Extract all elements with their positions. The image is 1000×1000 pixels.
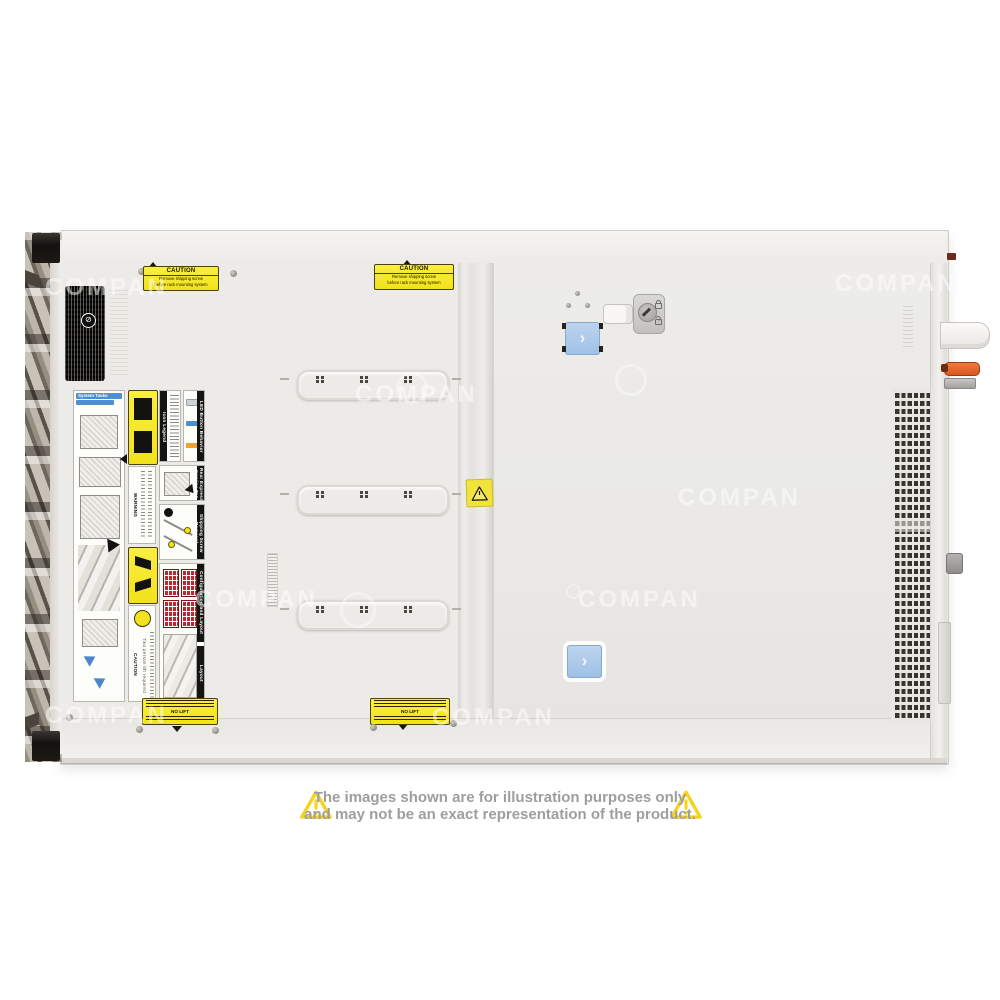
- vent-highlight: [893, 518, 931, 532]
- cover-recess-handle: [297, 485, 449, 515]
- seam-dash: [280, 493, 289, 495]
- vent-dots: [360, 376, 363, 379]
- psu-release-handle: [944, 362, 980, 376]
- system-tasks-subheader: [76, 400, 114, 405]
- disclaimer-line2: and may not be an exact representation o…: [0, 806, 1000, 823]
- locked-icon: [655, 303, 662, 309]
- disclaimer: The images shown are for illustration pu…: [0, 789, 1000, 823]
- caution-title: CAUTION: [375, 265, 453, 274]
- seam-dash: [452, 493, 461, 495]
- latch-clip: [599, 323, 603, 329]
- watermark-logo-ring: [566, 584, 581, 599]
- icon-legend-header: Icon Legend: [160, 391, 167, 462]
- blue-arrow-icon: [94, 673, 109, 688]
- chassis-top-edge: [60, 231, 946, 264]
- pinch-warning-strip: [128, 390, 158, 465]
- latch-clip: [562, 323, 566, 329]
- pointer-arrow-icon: [120, 454, 127, 464]
- caution-header: CAUTION: [130, 630, 138, 700]
- rear-bracket-handle: [940, 322, 990, 349]
- icon-legend-label: Icon Legend: [159, 390, 181, 462]
- chassis-bottom-shadow: [60, 758, 947, 764]
- rear-red-nub: [947, 253, 956, 260]
- hot-surface-sticker: [466, 479, 494, 508]
- watermark-text: COMPAN: [195, 586, 318, 614]
- pinch-hazard-icon: [135, 578, 151, 592]
- system-tasks-label: System Tasks: [73, 390, 125, 702]
- diagram-thumbnail: [82, 619, 118, 647]
- caution-line2: before rack mounting system: [378, 280, 450, 286]
- watermark-text: COMPAN: [578, 586, 701, 614]
- diagram-thumbnail: [80, 415, 118, 449]
- shipping-screw-header: Shipping Screw Removal: [197, 505, 204, 560]
- rivet: [566, 303, 571, 308]
- system-tasks-header: System Tasks: [76, 393, 122, 399]
- fine-print: [148, 471, 152, 539]
- rear-service-tag-header: Rear Express Service Tag: [197, 466, 204, 501]
- timer-icon: [134, 610, 151, 627]
- screw: [212, 727, 219, 734]
- warning-header: WARNING: [130, 469, 138, 541]
- screw: [370, 724, 377, 731]
- hand-pinch-icon: [134, 431, 152, 453]
- caution-line1: Remove shipping screw: [378, 274, 450, 280]
- watermark-logo-ring: [396, 372, 428, 404]
- hand-pinch-icon: [134, 398, 152, 420]
- config-layout-label: Configuration and Layout Layout: [159, 563, 205, 702]
- drive-layout-diagram: [163, 634, 197, 698]
- fine-print: [141, 471, 145, 539]
- watermark-text: COMPAN: [45, 274, 168, 302]
- diagram-thumbnail: [80, 495, 120, 539]
- warning-text-label: WARNING: [128, 466, 156, 544]
- legend-rows: [170, 395, 179, 459]
- screw-icon: [164, 508, 173, 517]
- vent-dots: [316, 376, 319, 379]
- pinch-point-label: [128, 547, 158, 604]
- latch-clip: [562, 346, 566, 352]
- seam-dash: [452, 608, 461, 610]
- rivet: [575, 291, 580, 296]
- product-photo-canvas: CAUTION Remove shipping screw before rac…: [0, 0, 1000, 1000]
- screw: [230, 270, 237, 277]
- rivet: [585, 303, 590, 308]
- psu-handle-cap: [941, 364, 948, 372]
- shipping-screw-label: Shipping Screw Removal: [159, 504, 205, 560]
- no-symbol-icon: ⊘: [81, 313, 96, 328]
- rear-metal-latch: [944, 378, 976, 389]
- watermark-text: COMPAN: [432, 704, 555, 732]
- latch-slider: [603, 304, 633, 324]
- led-behavior-label: LED Button Behavior: [183, 390, 205, 462]
- pinch-hazard-icon: [135, 556, 151, 570]
- watermark-logo-ring: [615, 364, 647, 396]
- unlocked-icon: [655, 319, 662, 325]
- cover-release-button: ›: [567, 645, 602, 678]
- seam-dash: [280, 378, 289, 380]
- rack-ear-latch-bottom: [32, 731, 60, 761]
- two-person-text: Two person lift required: [140, 630, 147, 700]
- chevron-right-icon: ›: [580, 328, 586, 347]
- latch-clip: [599, 346, 603, 352]
- caution-label-top-right: CAUTION Remove shipping screw before rac…: [374, 264, 454, 290]
- watermark-text: COMPAN: [45, 702, 168, 730]
- watermark-text: COMPAN: [678, 484, 801, 512]
- front-bezel-inner-strip: [50, 240, 62, 754]
- psu-vent-grid: [893, 390, 931, 720]
- disclaimer-line1: The images shown are for illustration pu…: [0, 789, 1000, 806]
- watermark-text: COMPAN: [835, 270, 958, 298]
- rear-thumbscrew: [946, 553, 963, 574]
- layout-header: Layout: [197, 646, 204, 701]
- alignment-arrow: [172, 726, 182, 732]
- rear-seam: [930, 380, 931, 760]
- watermark-logo-ring: [340, 592, 376, 628]
- screw-callout-dot: [184, 527, 191, 534]
- service-label-cluster: System Tasks WARNING CAUT: [73, 390, 205, 702]
- screw-callout-dot: [168, 541, 175, 548]
- vent-dots: [316, 491, 319, 494]
- etched-text-lines: [903, 306, 913, 348]
- dimm-grid: [163, 569, 179, 597]
- rear-lower-bracket: [938, 622, 951, 704]
- cover-release-latch: ›: [565, 322, 600, 355]
- fine-print: [150, 632, 154, 698]
- chevron-right-icon: ›: [582, 651, 588, 670]
- led-behavior-header: LED Button Behavior: [197, 391, 204, 462]
- vent-dots: [404, 491, 407, 494]
- dimm-grid: [163, 600, 179, 628]
- seam-dash: [452, 378, 461, 380]
- vent-dots: [360, 491, 363, 494]
- diagram-thumbnail: [79, 457, 121, 487]
- blue-arrow-icon: [84, 651, 99, 666]
- rack-ear-latch-top: [32, 233, 60, 263]
- rear-service-tag-label: Rear Express Service Tag: [159, 465, 205, 501]
- etched-text-lines: [110, 290, 128, 378]
- warning-triangle-icon: [471, 485, 489, 501]
- two-person-lift-label: CAUTION Two person lift required: [128, 605, 156, 702]
- vent-dots: [404, 606, 407, 609]
